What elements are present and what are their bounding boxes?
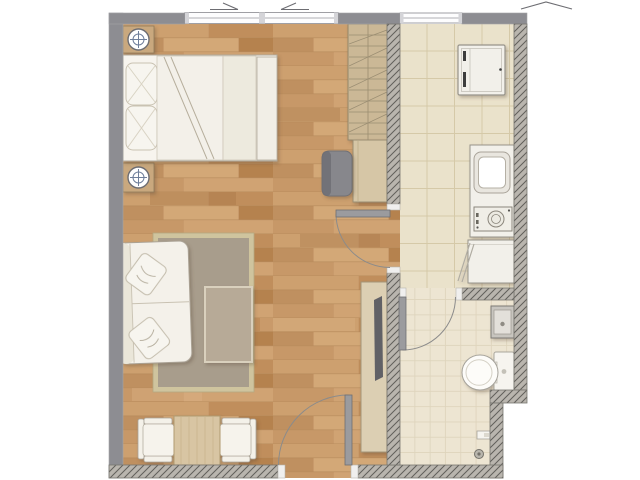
chair-backrest [322,151,331,196]
wall-right-upper [514,24,527,390]
kitchen-window [400,13,462,23]
tv [374,296,383,381]
door-leaf [345,395,352,465]
basin-drain [500,322,504,326]
wall-bathroom-top [462,288,514,300]
window-direction-marks [210,2,572,10]
paper-holder [477,431,490,439]
wall-top-left [109,13,185,24]
entry-threshold [278,465,358,478]
dining-table [174,416,220,465]
desk-chair [322,151,352,196]
bed-footboard-bench [257,57,277,160]
tv-sideboard [361,282,387,452]
wall-middle-lower [387,273,400,465]
kitchen-counter [470,145,514,237]
double-bed [123,55,277,161]
bedroom-window [185,13,338,24]
wall-step [490,390,527,403]
dining-set [138,416,256,465]
fridge-handle [463,51,466,61]
refrigerator [458,45,505,95]
bed-pillow-top [126,63,157,105]
burner [488,211,504,227]
wall-left [109,13,123,478]
floor-plan [0,0,640,480]
dining-chair-left [138,418,174,462]
bed-duvet [157,56,223,160]
wardrobe [348,24,388,140]
wall-top-right [462,13,527,24]
dining-chair-right [220,418,256,462]
wall-bottom-left [109,465,278,478]
floor-drain [475,450,484,459]
table-lamp-bottom-icon [128,167,149,188]
cooktop [474,207,512,231]
wall-middle-upper [387,24,400,204]
wall-bottom-right [358,465,503,478]
bed-foot-runner [223,56,256,160]
floor-plan-canvas [0,0,640,480]
doorway-threshold-bathroom [406,288,456,300]
table-lamp-top-icon [128,29,149,50]
door-leaf [336,210,390,217]
flush-button [502,369,507,374]
washbasin [491,306,514,338]
toilet-bowl [462,355,498,390]
coffee-table [205,287,252,362]
fridge-hinge-dot [499,68,502,71]
bed-pillow-bottom [126,106,157,150]
door-leaf [399,297,406,350]
sofa [115,241,192,364]
dresser-desk [353,140,387,202]
wall-top-middle [338,13,400,24]
toilet [462,352,514,391]
sink [474,152,510,193]
